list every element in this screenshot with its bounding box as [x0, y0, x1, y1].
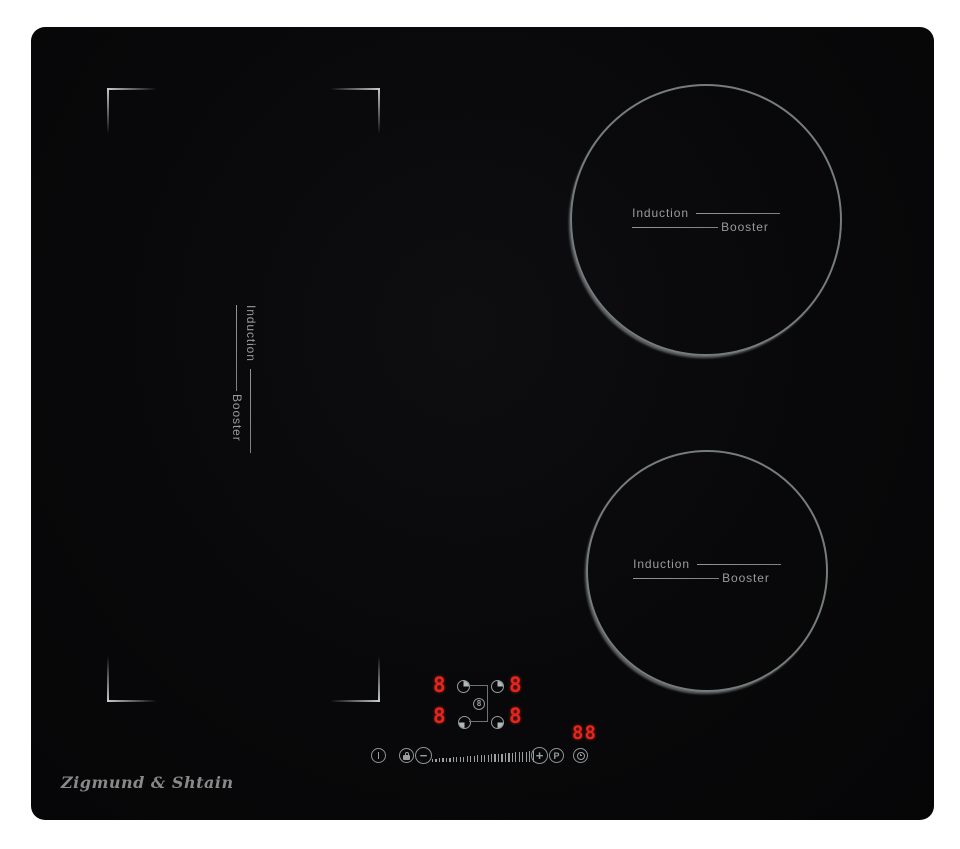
burner-label-induction: Induction: [633, 559, 690, 570]
label-rule-line: [696, 213, 780, 214]
flex-zone-label-induction: Induction: [245, 305, 256, 362]
zone-select-key-right-bottom-icon[interactable]: [491, 716, 504, 729]
zone-power-display-right-top: 8: [509, 676, 522, 694]
zone-connector-line-top: [469, 685, 488, 686]
product-photo-stage: Induction Booster Induction Booster: [0, 0, 960, 849]
burner-label-induction: Induction: [632, 208, 689, 219]
power-button[interactable]: [371, 748, 386, 763]
zone-power-display-right-bottom: 8: [509, 707, 522, 725]
zone-connector-line-vertical: [487, 685, 488, 722]
cooktop-glass-panel: Induction Booster Induction Booster: [31, 27, 934, 820]
zone-connector-line-bottom: [469, 721, 488, 722]
left-flex-zone-label: Induction Booster: [230, 305, 256, 487]
power-icon: [378, 752, 380, 759]
label-rule-line: [697, 564, 781, 565]
zone-power-display-left-bottom: 8: [433, 707, 446, 725]
zone-select-key-right-top-icon[interactable]: [491, 680, 504, 693]
timer-clock-icon: [577, 752, 585, 760]
timer-display: 88: [572, 725, 597, 742]
booster-p-button[interactable]: P: [549, 748, 564, 763]
zone-select-key-left-top-icon[interactable]: [457, 680, 470, 693]
label-rule-line: [633, 578, 719, 579]
burner-right-bottom-label: Induction Booster: [633, 559, 781, 584]
burner-label-booster: Booster: [722, 573, 770, 584]
minus-button[interactable]: −: [415, 747, 432, 764]
timer-button[interactable]: [573, 748, 588, 763]
burner-right-top: Induction Booster: [570, 84, 842, 356]
burner-label-booster: Booster: [721, 222, 769, 233]
lock-button[interactable]: [399, 748, 414, 763]
brand-logo: Zigmund & Shtain: [61, 773, 234, 792]
zone-power-display-left-top: 8: [433, 676, 446, 694]
label-rule-line: [250, 369, 251, 453]
burner-right-bottom: Induction Booster: [586, 450, 828, 692]
power-slider[interactable]: [432, 749, 534, 762]
zone-select-key-left-bottom-icon[interactable]: [458, 716, 471, 729]
center-key-indicator-icon: 8: [473, 698, 485, 710]
label-rule-line: [632, 227, 718, 228]
label-rule-line: [236, 305, 237, 391]
flex-zone-label-booster: Booster: [231, 394, 242, 442]
burner-right-top-label: Induction Booster: [632, 208, 780, 233]
plus-button[interactable]: +: [531, 747, 548, 764]
lock-icon: [403, 752, 410, 760]
